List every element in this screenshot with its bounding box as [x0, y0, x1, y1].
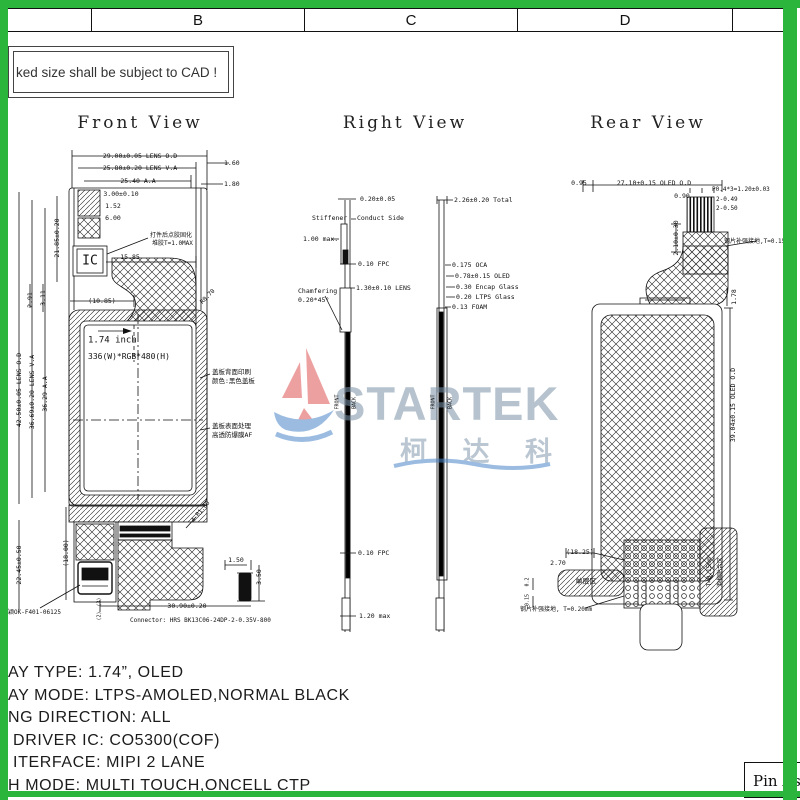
column-separator: [732, 9, 733, 31]
startek-sail-icon: [272, 346, 336, 450]
dim-label-front: 3.50: [256, 569, 263, 585]
drawing-sheet: STARTEK 柯 达 科 B C D ked size shall be su…: [0, 0, 800, 800]
dim-label-front: 42.50±0.05 LENS O.D: [16, 353, 23, 427]
dim-label-front: 25.40 A.A: [120, 178, 155, 185]
dim-label-right: 0.30 Encap Glass: [456, 284, 519, 291]
dim-label-front: 29.00±0.05 LENS O.D: [103, 153, 177, 160]
startek-logo: STARTEK 柯 达 科: [272, 338, 562, 468]
dim-label-front: 36.69±0.20 LENS V.A: [29, 355, 36, 429]
column-header-row: B C D: [8, 8, 783, 32]
cad-note-box: ked size shall be subject to CAD !: [8, 46, 234, 98]
spec-list: AY TYPE: 1.74”, OLEDAY MODE: LTPS-AMOLED…: [8, 662, 350, 798]
dim-label-rear: 单层区: [576, 579, 597, 586]
dim-label-rear: 2-0.50: [716, 206, 738, 212]
dim-label-front: 2.91: [27, 292, 34, 308]
dim-label-rear: 2.70: [550, 560, 566, 567]
dim-label-front: 1.74 inch: [88, 337, 137, 346]
dim-label-rear: 钢片补强接地, T=0.20mm: [520, 607, 592, 613]
dim-label-front: 30.90±0.20: [167, 603, 206, 610]
frame-border-right: [783, 0, 797, 800]
column-label-b: B: [193, 12, 203, 29]
dim-label-right: 0.175 OCA: [452, 262, 487, 269]
dim-label-front: 1.60: [224, 160, 240, 167]
dim-label-front: 15.85: [120, 254, 140, 261]
dim-label-right: 0.10 FPC: [358, 550, 389, 557]
dim-label-rear: 泡棉贴合区: [718, 557, 724, 587]
dim-label-rear: 39.04±0.15 OLED O.D: [730, 368, 737, 442]
dim-label-front: 堆胶T=1.0MAX: [152, 241, 193, 247]
right-view-title: Right View: [343, 113, 467, 133]
dim-label-front: 25.80±0.20 LENS V.A: [103, 165, 177, 172]
dim-label-right: 2.26±0.20 Total: [454, 197, 513, 204]
dim-label-front: 22.45±0.50: [16, 545, 23, 584]
dim-label-right: 0.78±0.15 OLED: [455, 273, 510, 280]
dim-label-front: 21.85±0.20: [54, 218, 61, 257]
column-separator: [304, 9, 305, 31]
dim-label-rear: 0.2: [526, 577, 531, 586]
spec-line: DRIVER IC: CO5300(COF): [8, 730, 350, 753]
dim-label-front: 3.11: [40, 290, 47, 306]
spec-line: AY MODE: LTPS-AMOLED,NORMAL BLACK: [8, 685, 350, 708]
dim-label-front: 东颖OK-F401-06125: [2, 610, 61, 616]
dim-label-front: 高透防爆膜AF: [212, 432, 252, 439]
spec-line: NG DIRECTION: ALL: [8, 707, 350, 730]
spec-line: ITERFACE: MIPI 2 LANE: [8, 752, 350, 775]
cad-note-text: ked size shall be subject to CAD !: [16, 65, 217, 80]
dim-label-rear: 27.10±0.15 OLED O.D: [617, 180, 691, 187]
dim-label-rear: T=0.15mm: [707, 558, 713, 587]
dim-label-front: (2): [98, 611, 103, 620]
dim-label-front: (18.00): [63, 539, 70, 566]
dim-label-front: (3): [98, 597, 103, 606]
dim-label-right: FRONT: [432, 394, 437, 409]
dim-label-rear: 0.15: [526, 594, 531, 606]
dim-label-front: 1.52: [105, 203, 121, 210]
dim-label-right: BACK: [353, 397, 358, 409]
dim-label-rear: 2-0.49: [716, 197, 738, 203]
dim-label-rear: 0.95: [571, 180, 587, 187]
dim-label-right: BACK: [449, 397, 454, 409]
dim-label-front: 盖板背面印刷: [212, 369, 251, 376]
dim-label-rear: 2.10±0.30: [673, 220, 680, 255]
spec-line: AY TYPE: 1.74”, OLED: [8, 662, 350, 685]
dim-label-right: Stiffener: [312, 215, 347, 222]
dim-label-front: Connector: HRS BK13C06-24DP-2-0.35V-800: [130, 618, 271, 624]
dim-label-right: Chamfering: [298, 288, 337, 295]
dim-label-front: 336(W)*RGB*480(H): [88, 353, 170, 361]
front-view-title: Front View: [77, 113, 202, 133]
rear-view-title: Rear View: [590, 113, 706, 133]
dim-label-front: 颜色:黑色盖板: [212, 378, 255, 385]
dim-label-front: 盖板表面处理: [212, 423, 251, 430]
dim-label-front: 打件后点胶固化: [150, 233, 192, 239]
dim-label-rear: 1.78: [731, 289, 738, 305]
column-label-c: C: [406, 12, 417, 29]
logo-wave-icon: [392, 456, 552, 472]
column-separator: [517, 9, 518, 31]
dim-label-right: 0.20 LTPS Glass: [456, 294, 515, 301]
dim-label-right: 1.30±0.10 LENS: [356, 285, 411, 292]
dim-label-front: 36.29 A.A: [42, 376, 49, 411]
dim-label-right: FRONT: [336, 394, 341, 409]
dim-label-front: IC: [82, 255, 98, 268]
column-separator: [91, 9, 92, 31]
dim-label-right: 0.10 FPC: [358, 261, 389, 268]
dim-label-right: 0.20*45°: [298, 297, 329, 304]
column-label-d: D: [620, 12, 631, 29]
dim-label-right: 1.20 max: [359, 613, 390, 620]
frame-border-left: [0, 0, 8, 800]
dim-label-front: 3.00±0.10: [103, 191, 138, 198]
dim-label-front: (10.85): [88, 298, 115, 305]
dim-label-right: 0.20±0.05: [360, 196, 395, 203]
dim-label-right: 1.00 max.: [303, 236, 338, 243]
dim-label-right: Conduct Side: [357, 215, 404, 222]
dim-label-front: 1.50: [228, 557, 244, 564]
dim-label-front: 1.80: [224, 181, 240, 188]
dim-label-rear: P0.4*3=1.20±0.03: [712, 187, 770, 193]
cad-note-inner-border: ked size shall be subject to CAD !: [13, 51, 229, 93]
dim-label-rear: (18.25): [566, 549, 593, 556]
frame-border-top: [0, 0, 800, 8]
dim-label-front: 6.00: [105, 215, 121, 222]
dim-label-right: 0.13 FOAM: [452, 304, 487, 311]
dim-label-rear: 0.90: [674, 193, 690, 200]
frame-border-bottom: [0, 791, 800, 797]
